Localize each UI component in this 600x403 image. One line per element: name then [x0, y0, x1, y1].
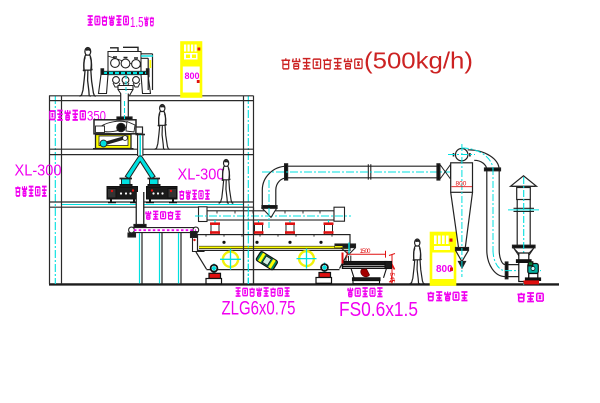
svg-text:XL-300: XL-300 — [178, 167, 225, 184]
svg-text:800: 800 — [185, 71, 200, 81]
svg-text:1500: 1500 — [360, 249, 372, 255]
svg-text:(500kg/h): (500kg/h) — [364, 48, 473, 74]
svg-text:ZLG6x0.75: ZLG6x0.75 — [222, 299, 296, 320]
svg-text:545: 545 — [388, 273, 395, 284]
svg-text:800: 800 — [456, 181, 467, 188]
svg-text:FS0.6x1.5: FS0.6x1.5 — [339, 299, 418, 321]
svg-text:XL-300: XL-300 — [15, 163, 62, 180]
svg-text:1.5: 1.5 — [130, 14, 144, 31]
